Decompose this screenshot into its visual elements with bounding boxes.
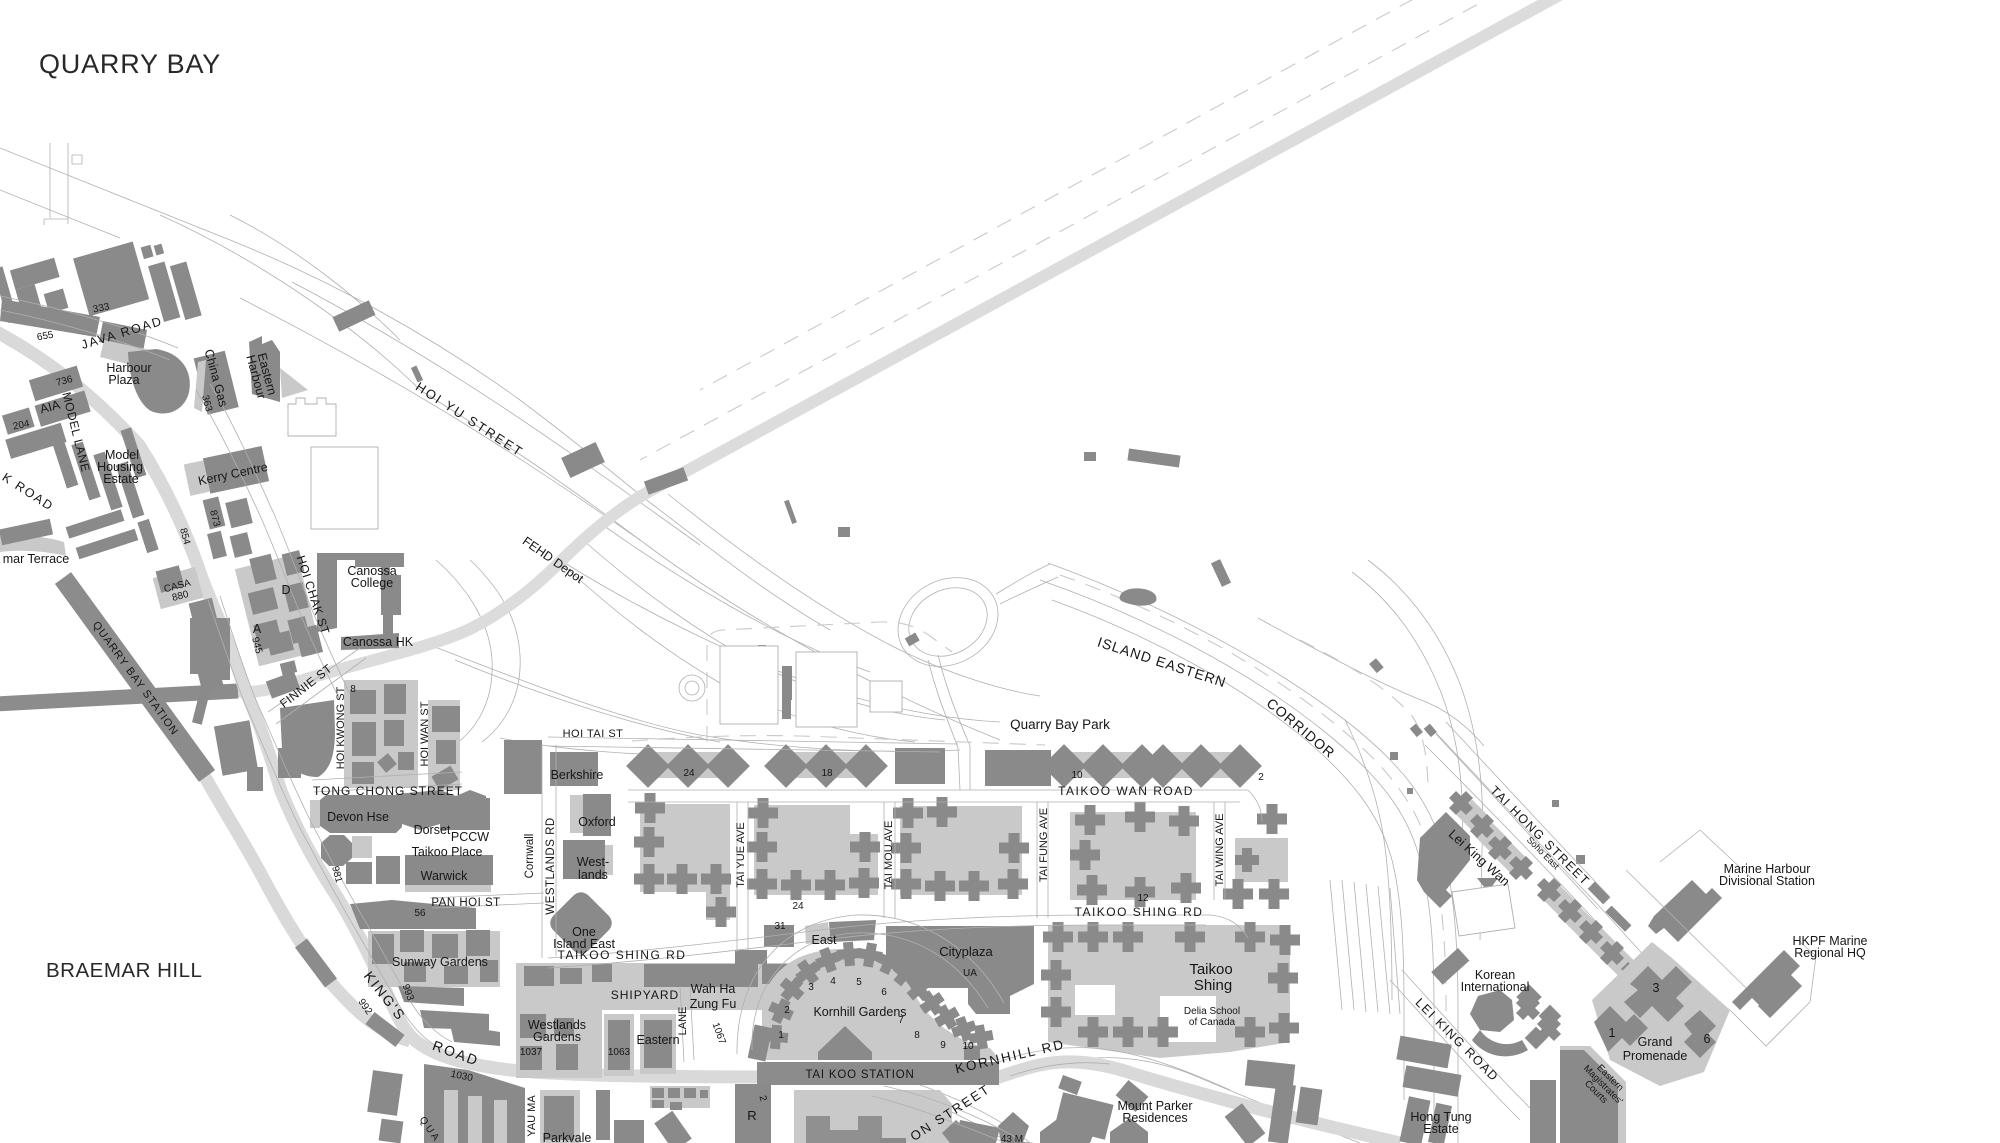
- svg-text:LANE: LANE: [677, 1007, 689, 1036]
- svg-text:1: 1: [778, 1030, 784, 1041]
- svg-text:College: College: [351, 576, 393, 590]
- svg-text:TAI YUE AVE: TAI YUE AVE: [735, 822, 747, 887]
- svg-text:8: 8: [350, 684, 356, 695]
- svg-text:Kornhill Gardens: Kornhill Gardens: [813, 1005, 906, 1019]
- svg-text:BRAEMAR HILL: BRAEMAR HILL: [46, 959, 202, 982]
- svg-text:Sunway Gardens: Sunway Gardens: [392, 955, 488, 969]
- svg-text:TAI WING AVE: TAI WING AVE: [1214, 814, 1226, 887]
- svg-text:YAU MA: YAU MA: [526, 1095, 538, 1137]
- svg-text:East: East: [811, 933, 837, 947]
- svg-text:Devon Hse: Devon Hse: [327, 810, 389, 824]
- svg-text:31: 31: [774, 921, 786, 932]
- svg-text:HOI WAN ST: HOI WAN ST: [419, 701, 431, 766]
- svg-text:Cityplaza: Cityplaza: [939, 944, 993, 959]
- svg-text:HOI KWONG ST: HOI KWONG ST: [335, 686, 347, 769]
- svg-text:Parkvale: Parkvale: [543, 1131, 592, 1143]
- svg-text:WESTLANDS RD: WESTLANDS RD: [545, 817, 557, 914]
- svg-text:Warwick: Warwick: [421, 869, 469, 883]
- svg-text:HOI TAI ST: HOI TAI ST: [563, 728, 624, 740]
- svg-text:12: 12: [1137, 893, 1149, 904]
- svg-text:5: 5: [856, 977, 862, 988]
- svg-text:2: 2: [1258, 772, 1264, 783]
- svg-text:8: 8: [914, 1030, 920, 1041]
- svg-text:A: A: [253, 622, 262, 636]
- svg-text:UA: UA: [963, 968, 977, 979]
- svg-text:18: 18: [821, 768, 833, 779]
- svg-text:1063: 1063: [608, 1047, 631, 1058]
- svg-text:1037: 1037: [520, 1047, 543, 1058]
- svg-text:of Canada: of Canada: [1189, 1017, 1236, 1028]
- svg-text:TAI MOU AVE: TAI MOU AVE: [883, 821, 895, 890]
- svg-text:Shing: Shing: [1194, 977, 1232, 994]
- svg-text:Cornwall: Cornwall: [524, 834, 536, 879]
- svg-text:10: 10: [962, 1041, 974, 1052]
- svg-text:Taikoo: Taikoo: [1189, 961, 1232, 978]
- svg-text:6: 6: [881, 987, 887, 998]
- svg-text:Eastern: Eastern: [636, 1033, 679, 1047]
- svg-text:1: 1: [1609, 1026, 1616, 1040]
- svg-text:Plaza: Plaza: [108, 373, 139, 387]
- svg-text:Taikoo Place: Taikoo Place: [412, 845, 483, 859]
- svg-text:TAI KOO STATION: TAI KOO STATION: [805, 1069, 914, 1081]
- svg-text:lands: lands: [578, 868, 608, 882]
- svg-text:Zung Fu: Zung Fu: [690, 997, 737, 1011]
- svg-text:Quarry Bay Park: Quarry Bay Park: [1010, 717, 1110, 732]
- svg-text:6: 6: [1704, 1032, 1711, 1046]
- svg-text:Delia School: Delia School: [1184, 1006, 1240, 1017]
- svg-text:TAIKOO SHING RD: TAIKOO SHING RD: [558, 948, 687, 962]
- svg-text:Estate: Estate: [103, 472, 138, 486]
- svg-text:2: 2: [784, 1005, 790, 1016]
- svg-text:24: 24: [792, 901, 804, 912]
- svg-text:3: 3: [808, 982, 814, 993]
- svg-text:D: D: [281, 583, 290, 597]
- svg-text:Dorset: Dorset: [414, 823, 451, 837]
- svg-text:Oxford: Oxford: [578, 815, 616, 829]
- svg-text:PCCW: PCCW: [451, 830, 489, 844]
- svg-text:Estate: Estate: [1423, 1122, 1458, 1136]
- svg-text:SHIPYARD: SHIPYARD: [611, 988, 679, 1002]
- svg-text:7: 7: [898, 1015, 904, 1026]
- svg-text:9: 9: [940, 1040, 946, 1051]
- svg-text:Gardens: Gardens: [533, 1030, 581, 1044]
- svg-text:TAI FUNG AVE: TAI FUNG AVE: [1038, 808, 1050, 882]
- svg-text:Promenade: Promenade: [1623, 1049, 1688, 1063]
- svg-text:10: 10: [1071, 770, 1083, 781]
- svg-text:Berkshire: Berkshire: [551, 768, 604, 782]
- svg-text:West-: West-: [577, 855, 609, 869]
- svg-text:24: 24: [683, 768, 695, 779]
- svg-text:Residences: Residences: [1122, 1111, 1187, 1125]
- svg-text:4: 4: [830, 976, 836, 987]
- svg-text:TAIKOO WAN ROAD: TAIKOO WAN ROAD: [1058, 784, 1194, 798]
- svg-text:3: 3: [1653, 981, 1660, 995]
- svg-text:R: R: [747, 1108, 756, 1123]
- svg-text:Wah Ha: Wah Ha: [691, 982, 736, 996]
- svg-text:Grand: Grand: [1638, 1035, 1673, 1049]
- svg-text:mar Terrace: mar Terrace: [3, 552, 70, 566]
- svg-text:TAIKOO SHING RD: TAIKOO SHING RD: [1075, 905, 1204, 919]
- svg-text:Canossa HK: Canossa HK: [343, 635, 414, 649]
- svg-text:QUARRY BAY: QUARRY BAY: [39, 49, 221, 79]
- svg-text:Regional HQ: Regional HQ: [1794, 946, 1866, 960]
- svg-text:Divisional Station: Divisional Station: [1719, 874, 1815, 888]
- svg-text:International: International: [1461, 980, 1530, 994]
- svg-text:TONG CHONG STREET: TONG CHONG STREET: [313, 784, 463, 798]
- svg-text:43 M: 43 M: [1001, 1134, 1023, 1143]
- svg-text:PAN HOI ST: PAN HOI ST: [431, 897, 500, 909]
- svg-text:56: 56: [414, 908, 426, 919]
